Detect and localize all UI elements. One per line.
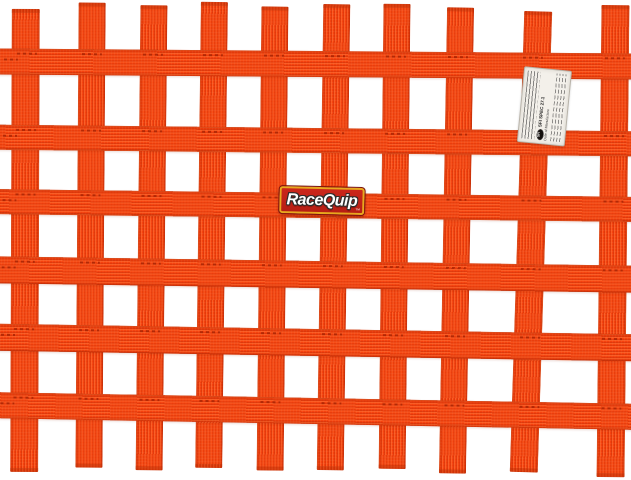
- stitch-mark: [260, 401, 280, 403]
- stitch-mark: [14, 328, 34, 330]
- stitch-mark: [382, 403, 402, 405]
- stitch-mark: [143, 54, 163, 56]
- stitch-mark: [323, 265, 343, 267]
- stitch-mark: [201, 263, 221, 265]
- stitch-mark: [444, 404, 464, 406]
- stitch-mark: [523, 57, 543, 59]
- stitch-mark: [603, 201, 623, 203]
- stitch-mark: [17, 53, 37, 55]
- stitch-mark: [322, 333, 342, 335]
- stitch-mark: [383, 334, 403, 336]
- stitch-mark: [604, 135, 624, 137]
- stitch-mark: [2, 199, 16, 201]
- brand-label-text: RaceQuip: [286, 192, 357, 210]
- stitch-mark: [262, 264, 282, 266]
- product-photo: RaceQuip ™ SFI SFI SPEC 27.1 Date of Man…: [0, 0, 631, 480]
- stitch-mark: [141, 262, 161, 264]
- sfi-logo-text: SFI: [538, 132, 542, 138]
- stitch-mark: [4, 59, 18, 61]
- stitch-mark: [15, 261, 35, 263]
- racequip-brand-label: RaceQuip ™: [278, 185, 366, 216]
- stitch-mark: [200, 331, 220, 333]
- stitch-mark: [603, 269, 623, 271]
- stitch-mark: [80, 194, 100, 196]
- stitch-mark: [601, 407, 621, 409]
- stitch-mark: [82, 53, 102, 55]
- stitch-mark: [605, 57, 625, 59]
- stitch-mark: [602, 338, 622, 340]
- stitch-mark: [141, 195, 161, 197]
- stitch-mark: [139, 399, 159, 401]
- stitch-mark: [79, 329, 99, 331]
- stitch-mark: [264, 55, 284, 57]
- stitch-mark: [3, 135, 17, 137]
- stitch-mark: [2, 266, 16, 268]
- stitch-mark: [140, 330, 160, 332]
- stitch-mark: [203, 54, 223, 56]
- stitch-mark: [199, 400, 219, 402]
- stitch-mark: [81, 130, 101, 132]
- stitch-mark: [16, 129, 36, 131]
- stitch-mark: [80, 262, 100, 264]
- stitch-mark: [1, 334, 15, 336]
- stitch-mark: [263, 131, 283, 133]
- stitch-mark: [78, 398, 98, 400]
- stitch-mark: [384, 266, 404, 268]
- stitch-mark: [201, 196, 221, 198]
- stitch-mark: [446, 267, 466, 269]
- stitch-mark: [446, 199, 466, 201]
- stitch-mark: [202, 131, 222, 133]
- stitch-mark: [142, 130, 162, 132]
- sfi-certification-tag: SFI SFI SPEC 27.1 Date of Manufacture: [517, 66, 572, 146]
- window-net: RaceQuip ™ SFI SFI SPEC 27.1 Date of Man…: [0, 0, 631, 480]
- stitch-mark: [521, 200, 541, 202]
- trademark-symbol: ™: [355, 208, 360, 214]
- stitch-mark: [447, 133, 467, 135]
- stitch-mark: [445, 335, 465, 337]
- stitch-mark: [448, 56, 468, 58]
- sfi-tag-content: SFI SFI SPEC 27.1 Date of Manufacture: [518, 67, 571, 145]
- stitch-mark: [261, 332, 281, 334]
- stitch-mark: [386, 56, 406, 58]
- stitch-mark: [520, 336, 540, 338]
- stitch-mark: [324, 132, 344, 134]
- stitch-mark: [0, 402, 14, 404]
- stitch-mark: [384, 198, 404, 200]
- stitch-mark: [13, 396, 33, 398]
- stitch-mark: [521, 268, 541, 270]
- stitch-mark: [15, 193, 35, 195]
- stitch-mark: [325, 55, 345, 57]
- stitch-mark: [385, 133, 405, 135]
- stitch-mark: [321, 402, 341, 404]
- stitch-mark: [519, 406, 539, 408]
